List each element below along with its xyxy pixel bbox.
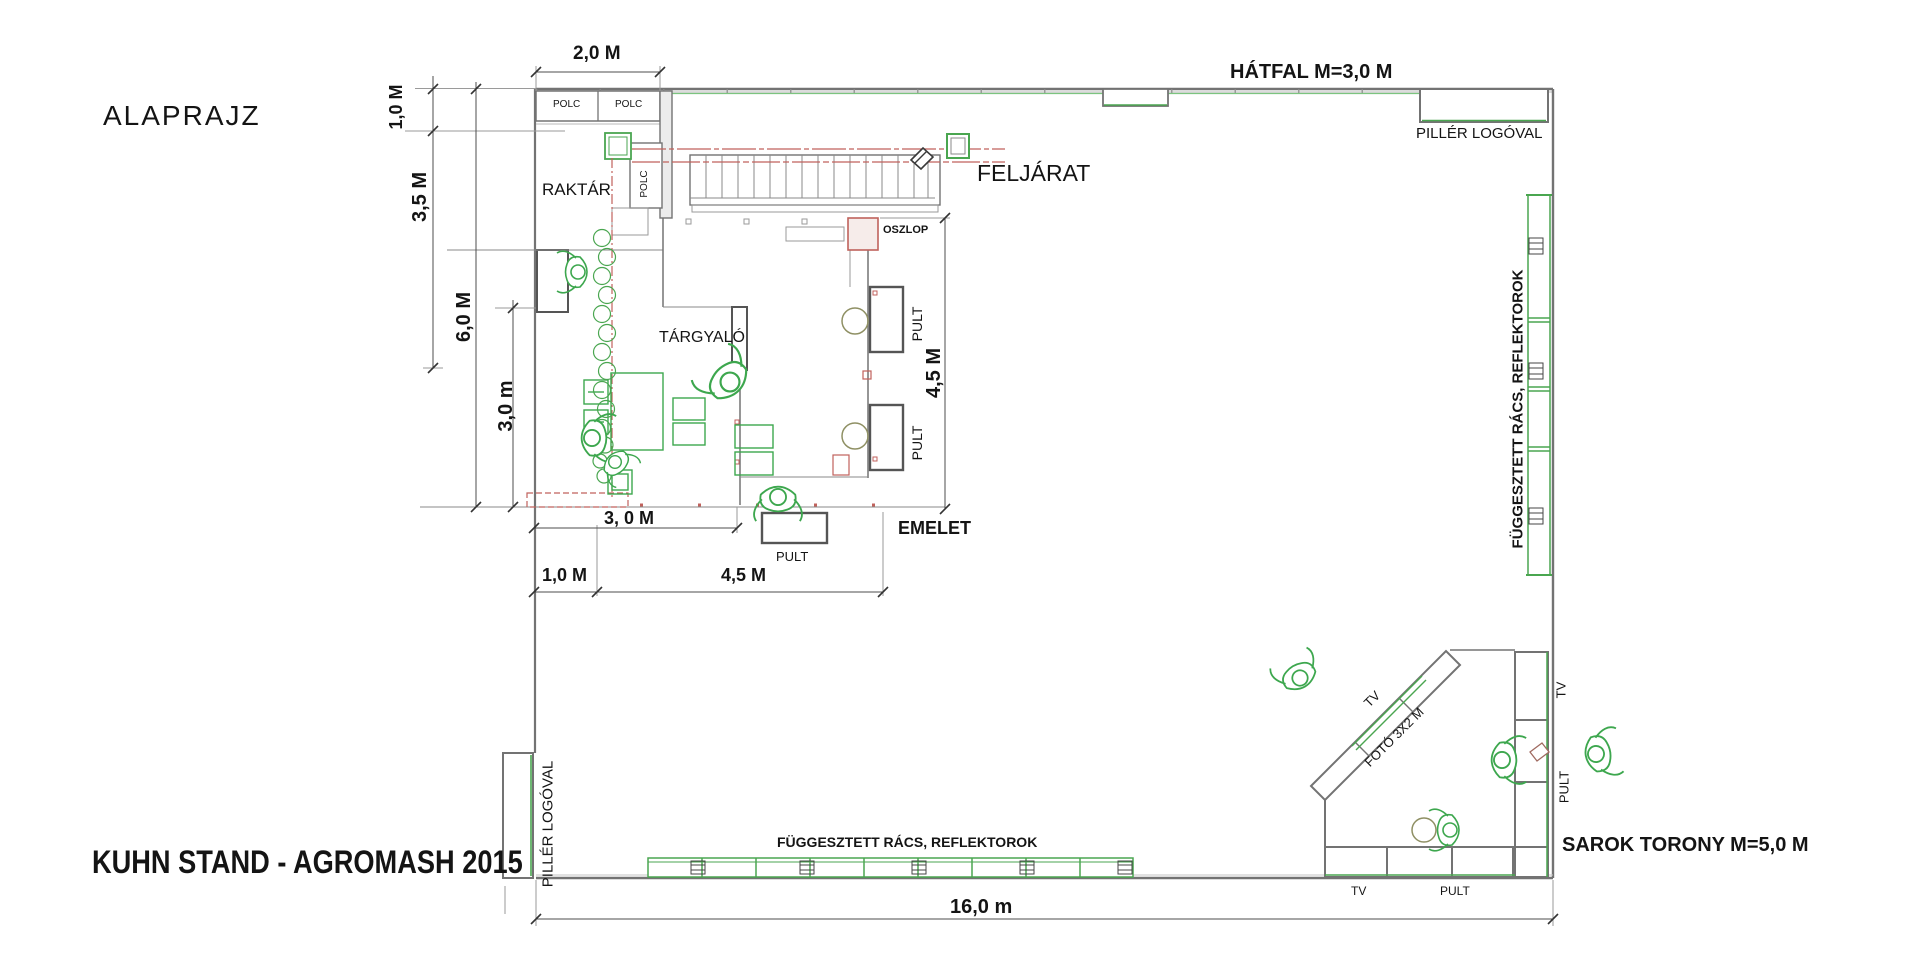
counter-bottom-label: PULT [1440, 885, 1470, 897]
dim-bottom2: 1,0 M [542, 566, 587, 584]
dim-v2: 3,5 M [410, 172, 430, 222]
stairs-label: FELJÁRAT [977, 162, 1090, 185]
counter-right1-label: PULT [910, 307, 924, 342]
pillar-bottom-label: PILLÉR LOGÓVAL [541, 761, 556, 887]
dim-bottom3: 4,5 M [721, 566, 766, 584]
dim-v4: 3,0 m [496, 380, 516, 431]
back-wall-label: HÁTFAL M=3,0 M [1230, 62, 1392, 82]
tv-bottom-label: TV [1351, 885, 1366, 897]
dim-v3: 6,0 M [454, 292, 474, 342]
right-rack-label: FÜGGESZTETT RÁCS, REFLEKTOROK [1511, 270, 1526, 549]
dim-v1: 1,0 M [387, 84, 405, 129]
corner-tower-label: SAROK TORONY M=5,0 M [1562, 835, 1809, 855]
counter-right2-label: PULT [910, 426, 924, 461]
upper-floor-label: EMELET [898, 519, 971, 537]
right-rack [1526, 195, 1552, 575]
project-title: KUHN STAND - AGROMASH 2015 [92, 846, 523, 878]
shelf-label-2: POLC [615, 100, 642, 110]
dim-top-width: 2,0 M [573, 44, 621, 63]
shelf-label-3: POLC [640, 170, 650, 197]
total-width-dim: 16,0 m [950, 897, 1012, 917]
shelf-label-1: POLC [553, 100, 580, 110]
dim-right-height: 4,5 M [924, 348, 944, 398]
tv-right-label: TV [1555, 682, 1568, 699]
meeting-room-label: TÁRGYALÓ [659, 330, 745, 346]
storage-label: RAKTÁR [542, 181, 611, 198]
column-label: OSZLOP [883, 225, 928, 236]
counter-bottom-unit-label: PULT [776, 550, 808, 563]
dim-bottom1: 3, 0 M [604, 509, 654, 527]
pillar-top-label: PILLÉR LOGÓVAL [1416, 126, 1542, 141]
page-title: ALAPRAJZ [103, 102, 261, 130]
counter-right-label: PULT [1558, 771, 1571, 803]
bottom-rack [648, 858, 1133, 877]
floor-plan-page: ALAPRAJZ KUHN STAND - AGROMASH 2015 HÁTF… [0, 0, 1920, 980]
floor-plan-drawing [0, 0, 1920, 980]
bottom-rack-label: FÜGGESZTETT RÁCS, REFLEKTOROK [777, 835, 1037, 849]
